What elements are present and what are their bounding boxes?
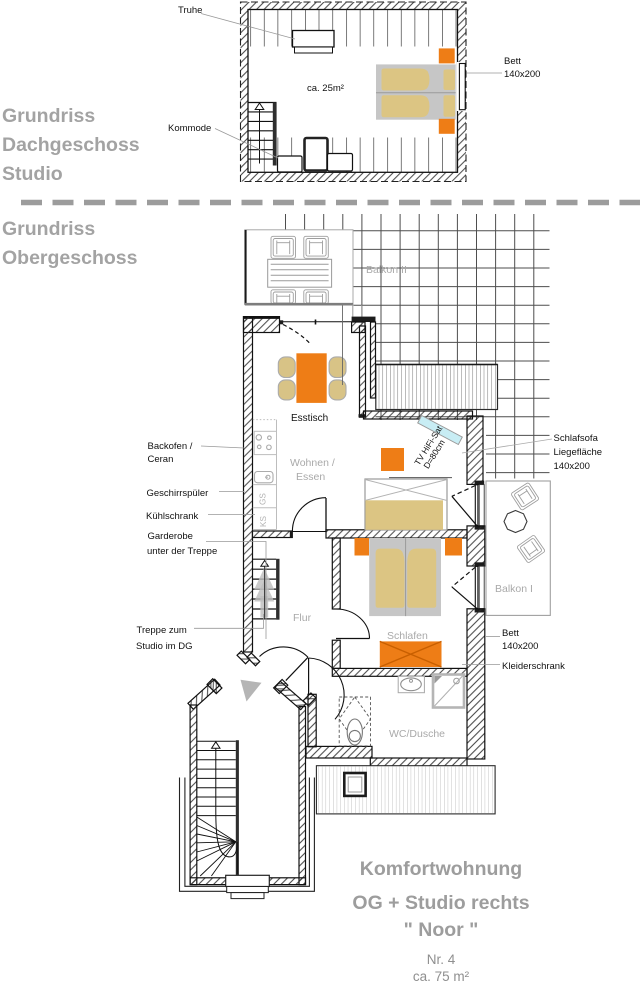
svg-text:Balkon I: Balkon I — [495, 583, 533, 595]
svg-text:Komfortwohnung: Komfortwohnung — [360, 858, 522, 880]
svg-text:Kleiderschrank: Kleiderschrank — [502, 661, 565, 672]
svg-text:Truhe: Truhe — [178, 5, 202, 16]
svg-text:OG + Studio rechts: OG + Studio rechts — [352, 892, 529, 914]
svg-text:Treppe zum: Treppe zum — [137, 625, 187, 636]
svg-text:Grundriss: Grundriss — [2, 105, 95, 127]
svg-text:Ceran: Ceran — [148, 454, 174, 465]
svg-text:Balkon II: Balkon II — [366, 264, 407, 276]
svg-text:KS: KS — [259, 516, 268, 527]
svg-text:140x200: 140x200 — [504, 69, 540, 80]
svg-text:Dachgeschoss: Dachgeschoss — [2, 134, 140, 156]
svg-text:Backofen /: Backofen / — [148, 441, 193, 452]
svg-text:140x200: 140x200 — [554, 461, 590, 472]
svg-text:Wohnen /: Wohnen / — [290, 457, 335, 469]
svg-text:ca. 25m²: ca. 25m² — [307, 83, 344, 94]
svg-text:Liegefläche: Liegefläche — [554, 447, 603, 458]
svg-text:unter der Treppe: unter der Treppe — [147, 546, 217, 557]
svg-text:Flur: Flur — [293, 612, 312, 624]
svg-text:ca. 75 m²: ca. 75 m² — [413, 969, 470, 984]
svg-text:Kommode: Kommode — [168, 123, 211, 134]
svg-text:Obergeschoss: Obergeschoss — [2, 247, 138, 269]
svg-text:Studio: Studio — [2, 163, 63, 185]
svg-text:Grundriss: Grundriss — [2, 218, 95, 240]
svg-text:Nr. 4: Nr. 4 — [427, 952, 456, 967]
svg-text:Studio im DG: Studio im DG — [136, 641, 193, 652]
svg-text:Schlafen: Schlafen — [387, 630, 428, 642]
svg-text:Esstisch: Esstisch — [291, 413, 328, 424]
svg-text:Essen: Essen — [296, 471, 325, 483]
svg-text:WC/Dusche: WC/Dusche — [389, 728, 445, 740]
svg-text:Schlafsofa: Schlafsofa — [554, 433, 599, 444]
svg-text:Bett: Bett — [502, 628, 519, 639]
svg-text:140x200: 140x200 — [502, 641, 538, 652]
svg-text:Kühlschrank: Kühlschrank — [146, 511, 199, 522]
svg-text:Geschirrspüler: Geschirrspüler — [147, 488, 209, 499]
svg-text:GS: GS — [259, 493, 268, 505]
svg-text:" Noor ": " Noor " — [404, 919, 479, 941]
svg-text:Garderobe: Garderobe — [148, 531, 193, 542]
svg-text:Bett: Bett — [504, 56, 521, 67]
